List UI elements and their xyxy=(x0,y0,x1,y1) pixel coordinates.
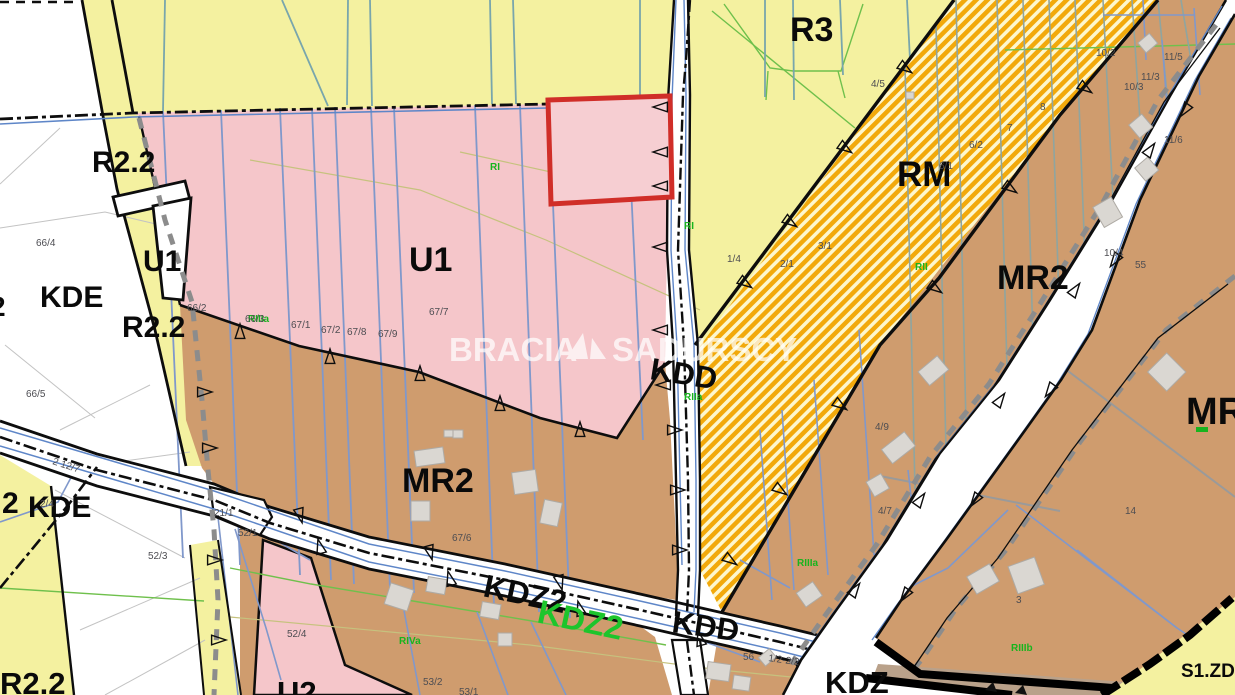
svg-text:11/6: 11/6 xyxy=(1164,135,1183,146)
svg-text:4/5: 4/5 xyxy=(871,79,885,90)
svg-text:67/7: 67/7 xyxy=(429,307,449,318)
svg-text:11/5: 11/5 xyxy=(1164,52,1183,63)
svg-text:66/3: 66/3 xyxy=(245,314,265,325)
svg-text:RI: RI xyxy=(490,162,500,173)
svg-text:RIVa: RIVa xyxy=(399,636,421,647)
svg-text:21/1: 21/1 xyxy=(214,508,234,519)
svg-text:R3: R3 xyxy=(790,11,833,49)
svg-text:52/1: 52/1 xyxy=(238,528,258,539)
svg-text:10/4: 10/4 xyxy=(1104,248,1124,259)
svg-text:U1: U1 xyxy=(409,241,452,279)
svg-text:56: 56 xyxy=(743,652,755,663)
svg-text:U2: U2 xyxy=(277,675,317,695)
svg-text:R2.2: R2.2 xyxy=(0,666,65,695)
svg-text:KDZ: KDZ xyxy=(825,665,889,695)
svg-text:10/2: 10/2 xyxy=(1096,48,1116,59)
svg-text:4/9: 4/9 xyxy=(875,422,889,433)
svg-text:U1: U1 xyxy=(143,245,181,278)
svg-text:RII: RII xyxy=(915,262,928,273)
svg-text:2/1: 2/1 xyxy=(780,259,794,270)
svg-text:2: 2 xyxy=(2,487,19,520)
svg-text:52/4: 52/4 xyxy=(287,629,307,640)
svg-text:RI: RI xyxy=(684,221,694,232)
svg-text:52/3: 52/3 xyxy=(148,551,168,562)
svg-text:3/1: 3/1 xyxy=(818,241,832,252)
svg-text:67/1: 67/1 xyxy=(291,320,311,331)
svg-text:6/1: 6/1 xyxy=(939,161,953,172)
svg-text:3: 3 xyxy=(1016,595,1022,606)
svg-text:14: 14 xyxy=(1125,506,1137,517)
svg-text:R2.2: R2.2 xyxy=(92,146,155,179)
svg-text:53/1: 53/1 xyxy=(459,687,479,695)
svg-text:BRACIA: BRACIA xyxy=(449,331,577,368)
svg-text:2/4: 2/4 xyxy=(40,499,54,510)
svg-text:RIIa: RIIa xyxy=(684,392,703,403)
svg-text:67/8: 67/8 xyxy=(347,327,367,338)
svg-text:1/4: 1/4 xyxy=(727,254,741,265)
svg-text:66/2: 66/2 xyxy=(187,303,207,314)
svg-text:RIIIb: RIIIb xyxy=(1011,643,1033,654)
svg-text:10/3: 10/3 xyxy=(1124,82,1144,93)
svg-text:53/2: 53/2 xyxy=(423,677,443,688)
svg-text:S1.ZD: S1.ZD xyxy=(1181,661,1235,682)
svg-text:MR2: MR2 xyxy=(402,462,474,500)
svg-text:KDE: KDE xyxy=(28,491,91,524)
svg-text:6/2: 6/2 xyxy=(969,140,983,151)
svg-text:KDE: KDE xyxy=(40,281,103,314)
svg-text:66/5: 66/5 xyxy=(26,389,46,400)
svg-text:MR2: MR2 xyxy=(1186,391,1235,433)
svg-text:8: 8 xyxy=(1040,102,1046,113)
svg-text:RIIIa: RIIIa xyxy=(797,558,819,569)
svg-text:67/9: 67/9 xyxy=(378,329,398,340)
svg-text:11/3: 11/3 xyxy=(1141,72,1160,83)
svg-text:7: 7 xyxy=(1007,123,1013,134)
svg-text:MR2: MR2 xyxy=(997,259,1069,297)
svg-text:67/6: 67/6 xyxy=(452,533,472,544)
svg-text:55: 55 xyxy=(1135,260,1147,271)
svg-text:2: 2 xyxy=(0,291,6,322)
svg-text:4/7: 4/7 xyxy=(878,506,892,517)
svg-text:66/4: 66/4 xyxy=(36,238,56,249)
svg-text:67/2: 67/2 xyxy=(321,325,341,336)
svg-text:R2.2: R2.2 xyxy=(122,311,185,344)
